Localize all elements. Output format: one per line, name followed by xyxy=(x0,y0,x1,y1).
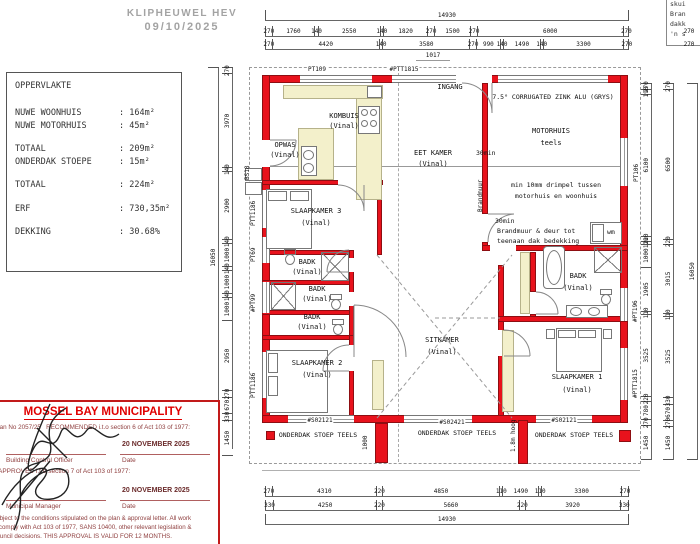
date-stamp-watermark: KLIPHEUWEL HEV 09/10/2025 xyxy=(92,8,272,33)
dim-segment: 270 xyxy=(623,26,630,37)
dim-segment: 330 xyxy=(222,414,233,422)
sink-bowl-icon xyxy=(303,150,314,160)
window-label-pt69: PT69 xyxy=(250,248,257,262)
room-slaapkamer2: SLAAPKAMER 2 xyxy=(292,359,343,367)
sink-bowl-icon xyxy=(303,163,314,173)
stove-burner-icon xyxy=(361,120,368,127)
dim-offset-line xyxy=(416,60,450,61)
firedoor-note-1: Brandmuur & deur tot xyxy=(497,227,575,235)
roof-note-partial: skui Bran dakk 'n s xyxy=(666,0,700,46)
window-pt99 xyxy=(262,282,270,313)
stoep-label: ONDERDAK STOEP TEELS xyxy=(279,431,357,439)
dim-segment: 1000 xyxy=(222,298,233,322)
signature-line xyxy=(6,454,106,455)
pillow-icon xyxy=(268,376,278,396)
floor-plan-sheet: KLIPHEUWEL HEV 09/10/2025 OPPERVLAKTE NU… xyxy=(0,0,700,544)
dim-segment: 2950 xyxy=(222,322,233,392)
door-gap xyxy=(490,245,516,251)
dim-corner-270b: 270 xyxy=(684,41,695,48)
municipality-approval-stamp: MOSSEL BAY MUNICIPALITY Plan No 2057/25 … xyxy=(0,400,220,544)
room-sitkamer: SITKAMER xyxy=(425,336,459,344)
pillow-icon xyxy=(268,191,287,201)
room-slaapkamer2-floor: (Vinal) xyxy=(302,371,332,379)
dim-segment: 2550 xyxy=(318,26,380,37)
dim-offset-label: 1017 xyxy=(426,52,440,59)
window-label-ptt1186-top: PTT1186 xyxy=(250,201,257,226)
dim-segment: 16050 xyxy=(208,68,219,448)
dim-col-left-total: 16050 xyxy=(208,67,219,449)
window-label-pt99: #PT99 xyxy=(250,294,257,312)
door-gap xyxy=(349,258,354,272)
dim-segment: 330 xyxy=(663,398,674,406)
window-label-ptt1815-right: #PTT1815 xyxy=(632,369,639,398)
dim-segment: 330 xyxy=(265,500,273,511)
stoep-edge-line xyxy=(262,470,640,471)
stamp-footer-1: Subject to the conditions stipulated on … xyxy=(0,515,215,522)
stoep-label: ONDERDAK STOEP TEELS xyxy=(535,431,613,439)
stamp-plan-line: Plan No 2057/25 RECOMMENDED i.t.o sectio… xyxy=(0,424,214,431)
threshold-note-2: motorhuis en woonhuis xyxy=(515,192,597,200)
toilet-icon xyxy=(284,249,296,265)
pillow-icon xyxy=(268,353,278,373)
dim-segment: 4310 xyxy=(272,486,377,497)
slaapkamer1-closet xyxy=(502,330,514,412)
signature-line xyxy=(6,500,106,501)
room-motorhuis: MOTORHUIS xyxy=(532,127,570,135)
window-pt109 xyxy=(300,75,372,83)
stoep-column xyxy=(266,431,275,440)
room-badk-b-floor: (Vinal) xyxy=(302,295,332,303)
linen-cupboard xyxy=(372,360,384,410)
stamp-title: MOSSEL BAY MUNICIPALITY xyxy=(0,406,218,418)
window-ptt1815-right xyxy=(620,348,628,400)
wall-slaapkamer1-north xyxy=(498,316,628,322)
window-pt106 xyxy=(620,138,628,186)
room-badk-a-floor: (Vinal) xyxy=(292,268,322,276)
room-ingang: INGANG xyxy=(437,83,462,91)
room-motorhuis-floor: teels xyxy=(540,139,561,147)
room-badk-a: BADK xyxy=(299,258,316,266)
opwas-door-opening xyxy=(262,140,270,167)
window-label-pt196: #PT196 xyxy=(632,300,639,322)
toilet-icon xyxy=(332,319,344,335)
dim-segment: 270 xyxy=(623,39,630,50)
dim-segment: 1450 xyxy=(663,427,674,460)
stamp-date-label-1: Date xyxy=(122,457,136,464)
door-gap xyxy=(349,292,354,306)
watermark-date: 09/10/2025 xyxy=(92,21,272,33)
wall-slaapkamer2-north xyxy=(262,335,354,340)
room-badk-d: BADK xyxy=(570,272,587,280)
dim-row-bottom-1: 2704310220485011014901103300270 xyxy=(265,486,629,497)
room-slaapkamer1: SLAAPKAMER 1 xyxy=(552,373,603,381)
dim-segment: 14930 xyxy=(265,514,628,525)
room-badk-c: BADK xyxy=(304,313,321,321)
dim-segment: 270 xyxy=(621,486,628,497)
shower-icon xyxy=(594,247,622,273)
dim-col-left: 2703970140290014010001401000140100029502… xyxy=(222,67,233,449)
roof-spec-note: 7.5° CORRUGATED ZINK ALU (GRYS) xyxy=(492,93,613,101)
fire-rating-note-2: 30min xyxy=(495,217,515,225)
table-row: TOTAAL: 224m² xyxy=(15,179,173,192)
pedestal-icon xyxy=(603,329,612,339)
slider-label-s02121-left: #S02121 xyxy=(306,417,333,424)
room-slaapkamer1-floor: (Vinal) xyxy=(562,386,592,394)
stoep-label: ONDERDAK STOEP TEELS xyxy=(418,429,496,437)
date-line xyxy=(120,454,210,455)
dim-segment: 1000 xyxy=(641,245,652,268)
window-pt196 xyxy=(620,288,628,321)
dim-segment: 3920 xyxy=(525,500,620,511)
dim-segment: 1490 xyxy=(502,486,538,497)
stamp-date-1: 20 NOVEMBER 2025 xyxy=(122,441,190,448)
window-ptt1815 xyxy=(392,75,456,83)
window-label-pt109: PT109 xyxy=(307,66,327,73)
table-row: NUWE MOTORHUIS: 45m² xyxy=(15,120,173,133)
room-eetkamer: EET KAMER xyxy=(414,149,452,157)
table-row: DEKKING: 30.68% xyxy=(15,226,173,239)
dim-segment: 3525 xyxy=(641,315,652,397)
slider-label-s02421: #S02421 xyxy=(438,419,465,426)
laundry-sink-icon xyxy=(592,224,604,242)
dim-segment: 1490 xyxy=(503,39,539,50)
date-line xyxy=(120,500,210,501)
stamp-recommended: RECOMMENDED i.t.o section 6 of Act 103 o… xyxy=(46,424,190,431)
window-label-ptt1186-bottom: PTT1186 xyxy=(250,373,257,398)
stoep-column xyxy=(619,430,631,442)
stoep-opening-dim: 1000 xyxy=(362,436,369,450)
room-eetkamer-floor: (Vinal) xyxy=(418,160,448,168)
basin-icon xyxy=(588,307,600,316)
dim-segment: 3300 xyxy=(543,39,623,50)
dim-segment: 4420 xyxy=(272,39,379,50)
area-schedule-title: OPPERVLAKTE xyxy=(15,81,173,91)
dim-segment: 1760 xyxy=(272,26,315,37)
room-badk-d-floor: (Vinal) xyxy=(563,284,593,292)
pillow-icon xyxy=(578,330,596,338)
stamp-date-2: 20 NOVEMBER 2025 xyxy=(122,487,190,494)
garage-door-opening xyxy=(498,75,608,83)
window-label-pt106: PT106 xyxy=(633,164,640,182)
dim-col-right-total: 16050 xyxy=(687,83,698,460)
stove-burner-icon xyxy=(370,120,377,127)
brandmuur-note: Brandmuur xyxy=(477,179,484,212)
dim-segment: 4850 xyxy=(382,486,500,497)
dim-segment: 5660 xyxy=(382,500,520,511)
room-slaapkamer3: SLAAPKAMER 3 xyxy=(291,207,342,215)
wall-badk-d-west xyxy=(530,252,536,292)
dim-segment: 1820 xyxy=(383,26,427,37)
basin-icon xyxy=(570,307,582,316)
room-slaapkamer3-floor: (Vinal) xyxy=(301,219,331,227)
dim-segment: 3580 xyxy=(382,39,469,50)
dim-segment: 1450 xyxy=(222,421,233,455)
dim-segment: 3300 xyxy=(541,486,621,497)
firedoor-note-2: teenaan dak bedekking xyxy=(497,237,579,245)
washing-machine-label: wm xyxy=(607,228,615,236)
dim-segment: 16050 xyxy=(687,84,698,460)
table-row: NUWE WOONHUIS: 164m² xyxy=(15,107,173,120)
dim-segment: 3970 xyxy=(222,74,233,168)
dim-segment: 1905 xyxy=(641,268,652,312)
dim-segment: 4250 xyxy=(273,500,376,511)
dim-row-top-2: 27017601402550140182027015002706000270 xyxy=(265,26,629,37)
threshold-note-1: min 10mm drimpel tussen xyxy=(511,181,601,189)
room-badk-c-floor: (Vinal) xyxy=(297,323,327,331)
stoep-wall-1800 xyxy=(518,420,528,464)
stamp-plan-no: Plan No 2057/25 xyxy=(0,424,41,431)
dim-segment: 6000 xyxy=(477,26,623,37)
dim-segment: 3525 xyxy=(663,317,674,398)
step-icon xyxy=(245,182,262,195)
room-opwas-floor: (Vinal) xyxy=(270,151,300,159)
fire-rating-note: 30min xyxy=(476,149,496,157)
area-schedule: OPPERVLAKTE NUWE WOONHUIS: 164m² NUWE MO… xyxy=(6,72,182,272)
door-gap xyxy=(349,345,354,371)
shower-icon xyxy=(271,282,296,310)
slider-label-s02121-right: #S02121 xyxy=(550,417,577,424)
dim-col-right-outer: 2706500220301511035253306702701450 xyxy=(663,83,674,460)
stamp-manager-label: Municipal Manager xyxy=(6,503,61,510)
pedestal-icon xyxy=(546,329,555,339)
bathtub-basin-icon xyxy=(546,250,562,285)
stove-burner-icon xyxy=(370,109,377,116)
room-kombuis-floor: (Vinal) xyxy=(329,122,359,130)
room-badk-b: BADK xyxy=(309,285,326,293)
room-opwas: OPWAS xyxy=(274,141,295,149)
toilet-icon xyxy=(330,294,342,310)
table-row: TOTAAL: 209m² xyxy=(15,143,173,156)
entrance-opening xyxy=(456,75,492,83)
stamp-date-label-2: Date xyxy=(122,503,136,510)
stoep-wall-height-note: 1.8m hoog xyxy=(510,419,517,452)
dim-row-top-total: 14930 xyxy=(265,10,629,21)
stamp-footer-2: to comply with Act 103 of 1977, SANS 104… xyxy=(0,524,215,531)
grid-centerline xyxy=(398,68,399,462)
hall-cupboard xyxy=(520,252,530,314)
watermark-site: KLIPHEUWEL HEV xyxy=(92,8,272,19)
dim-segment: 2900 xyxy=(222,172,233,241)
dim-corner-270a: 270 xyxy=(684,28,695,35)
shower-icon xyxy=(321,252,349,281)
dim-row-bottom-total: 14930 xyxy=(265,514,629,525)
pillow-icon xyxy=(290,191,309,201)
table-row: ERF: 730,35m² xyxy=(15,203,173,216)
kitchen-sink-icon xyxy=(367,86,382,98)
dim-segment: 3015 xyxy=(663,245,674,314)
dim-segment: 330 xyxy=(620,500,628,511)
table-row: ONDERDAK STOEPE: 15m² xyxy=(15,156,173,169)
dim-segment: 14930 xyxy=(265,10,628,21)
dim-row-top-3: 2704420140358027099014014901403300270 xyxy=(265,39,629,50)
pillow-icon xyxy=(558,330,576,338)
stamp-footer-3: Council decisions. THIS APPROVAL IS VALI… xyxy=(0,533,215,540)
stoep-pier xyxy=(375,423,388,463)
dim-segment: 6100 xyxy=(641,95,652,237)
stamp-officer-label: Building Control Officer xyxy=(6,457,73,464)
stamp-approved: APPROVED i.t.o section 7 of Act 103 of 1… xyxy=(0,468,130,475)
door-label-bs18: BS18 xyxy=(244,166,251,180)
dim-segment: 1450 xyxy=(641,426,652,460)
stove-burner-icon xyxy=(361,109,368,116)
room-sitkamer-floor: (Vinal) xyxy=(427,348,457,356)
room-kombuis: KOMBUIS xyxy=(329,112,359,120)
dim-segment: 1500 xyxy=(434,26,470,37)
dim-row-bottom-2: 330425022056602203920330 xyxy=(265,500,629,511)
dim-col-right-inner: 2701906100220110100019051103525220780270… xyxy=(641,83,652,460)
window-label-ptt1815: #PTT1815 xyxy=(389,66,420,73)
toilet-icon xyxy=(600,289,612,305)
dim-segment: 6500 xyxy=(663,90,674,240)
